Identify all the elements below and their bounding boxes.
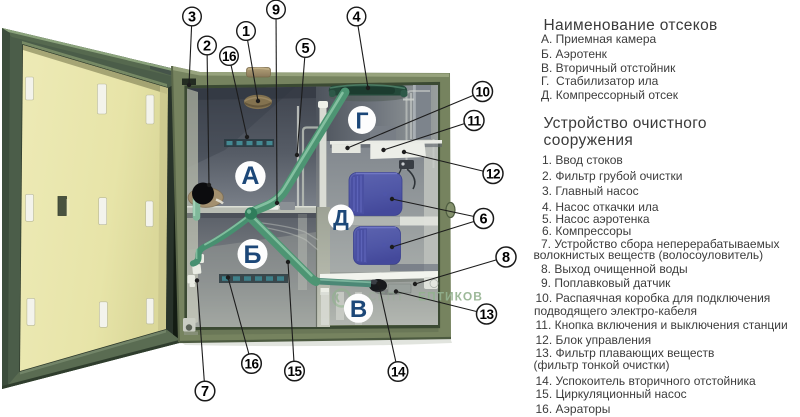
svg-text:5: 5 [301,41,309,57]
svg-text:6: 6 [479,212,487,228]
svg-text:8: 8 [502,250,510,266]
svg-text:1: 1 [242,24,250,40]
svg-text:13: 13 [479,307,494,322]
svg-text:2: 2 [203,39,211,55]
svg-text:Д: Д [333,205,349,230]
svg-text:15: 15 [287,364,302,379]
svg-text:Г: Г [355,107,368,133]
svg-text:В: В [350,296,367,323]
svg-text:3: 3 [188,10,196,26]
svg-text:16: 16 [244,356,259,371]
svg-text:Б: Б [244,241,262,269]
svg-text:А: А [241,162,259,190]
svg-text:11: 11 [467,113,481,128]
svg-text:9: 9 [272,3,280,19]
svg-text:16: 16 [222,49,237,64]
svg-text:14: 14 [391,364,406,379]
svg-text:12: 12 [486,166,500,181]
svg-text:ЕПТИКОВ: ЕПТИКОВ [418,290,483,304]
svg-text:7: 7 [201,384,209,400]
svg-text:10: 10 [475,84,489,99]
svg-text:СЕПТ: СЕПТ [368,290,405,304]
svg-text:4: 4 [352,10,360,26]
